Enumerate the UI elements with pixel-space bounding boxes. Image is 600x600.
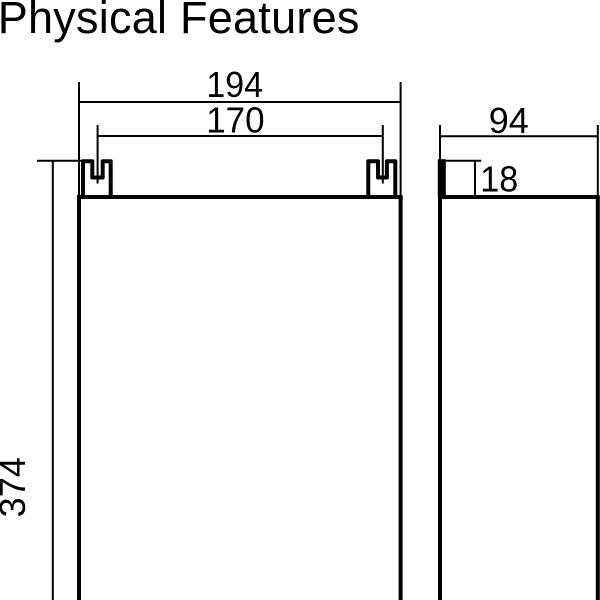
svg-text:Physical Features: Physical Features xyxy=(0,0,360,43)
svg-text:374: 374 xyxy=(0,457,33,517)
svg-text:94: 94 xyxy=(489,100,529,141)
svg-text:170: 170 xyxy=(206,100,264,141)
svg-text:18: 18 xyxy=(480,159,518,200)
